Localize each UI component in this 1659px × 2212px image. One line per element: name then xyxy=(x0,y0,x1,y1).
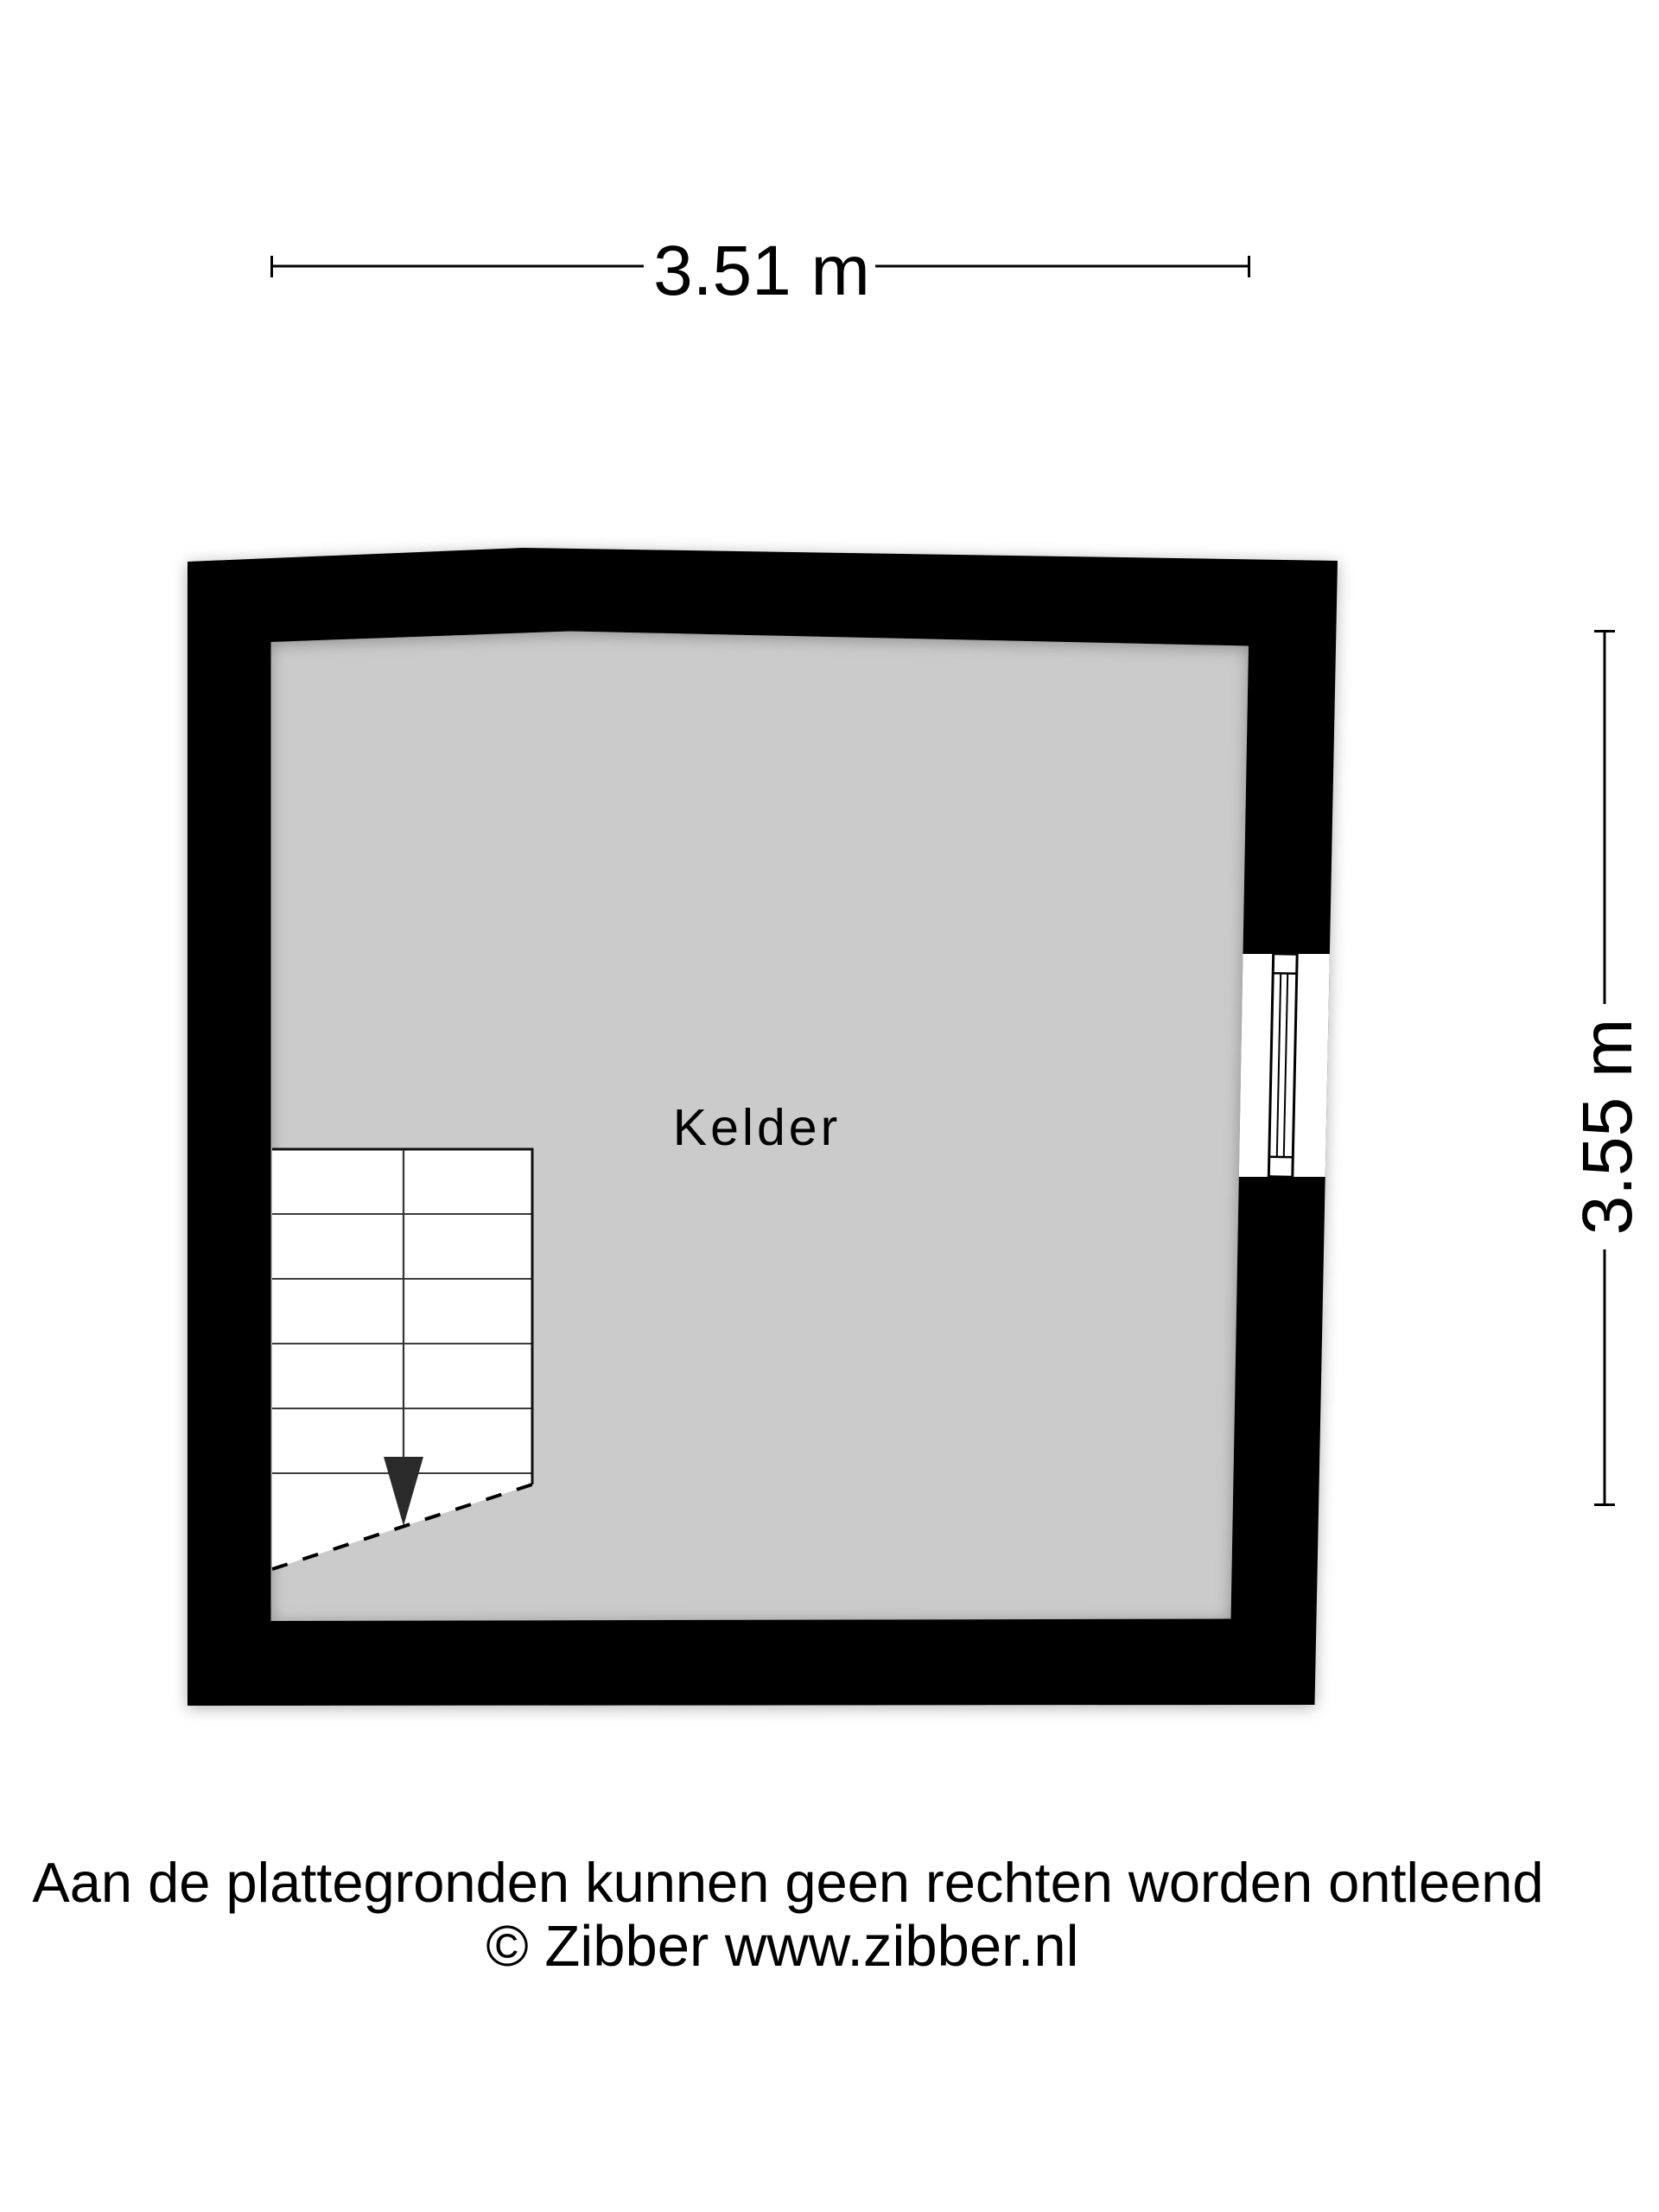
svg-text:© Zibber www.zibber.nl: © Zibber www.zibber.nl xyxy=(486,1914,1078,1979)
svg-text:Kelder: Kelder xyxy=(673,1099,842,1156)
svg-text:3.51 m: 3.51 m xyxy=(653,232,870,310)
svg-text:3.55 m: 3.55 m xyxy=(1568,1019,1647,1236)
svg-text:Aan de plattegronden kunnen ge: Aan de plattegronden kunnen geen rechten… xyxy=(32,1851,1543,1914)
